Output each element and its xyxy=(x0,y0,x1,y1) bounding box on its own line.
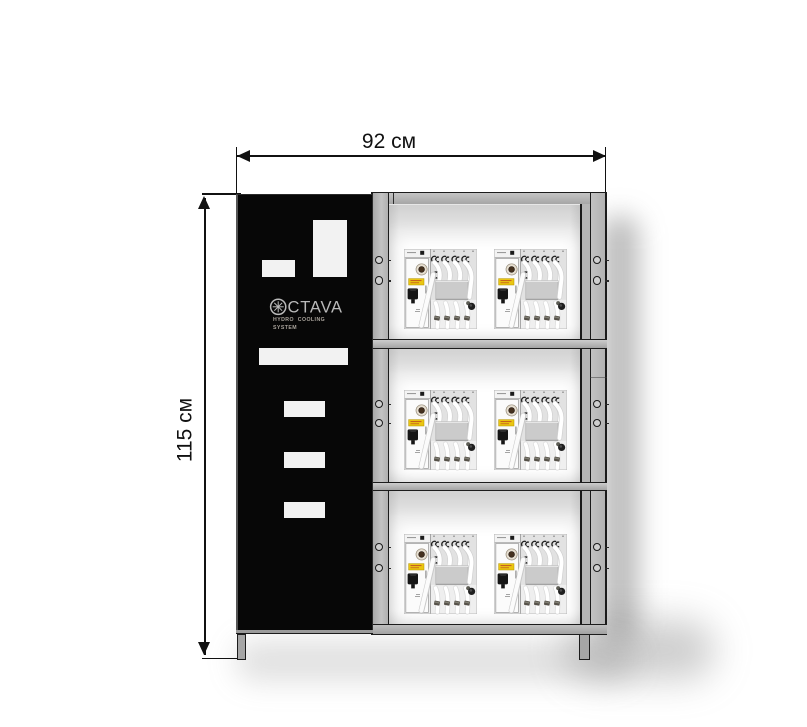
svg-text:CTAVA: CTAVA xyxy=(288,299,343,317)
